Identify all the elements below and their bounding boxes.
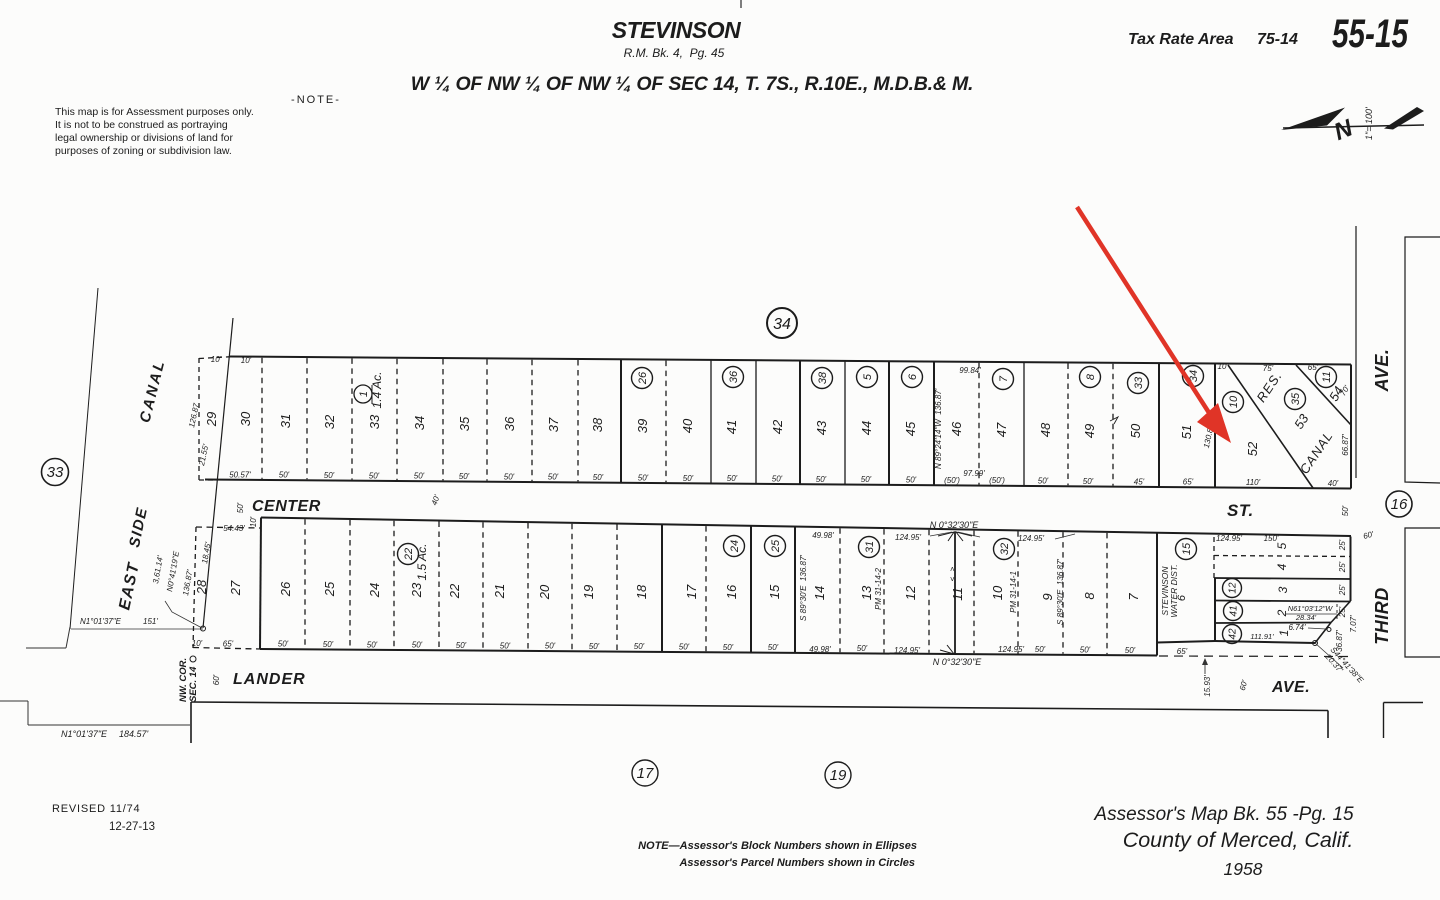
svg-text:25: 25	[770, 539, 782, 553]
svg-text:36.87': 36.87'	[1335, 630, 1344, 652]
svg-text:32: 32	[999, 543, 1011, 555]
svg-text:43: 43	[814, 420, 829, 435]
svg-text:42: 42	[770, 419, 785, 434]
svg-text:50': 50'	[323, 640, 334, 649]
svg-text:110': 110'	[1246, 478, 1261, 487]
svg-text:purposes of zoning or subdivis: purposes of zoning or subdivision law.	[55, 145, 232, 157]
svg-text:124.95': 124.95'	[998, 645, 1024, 654]
svg-text:It is not to be construed as p: It is not to be construed as portraying	[55, 119, 228, 131]
svg-text:4: 4	[1275, 563, 1289, 570]
svg-text:1.5 Ac.: 1.5 Ac.	[415, 544, 429, 581]
svg-text:N 89°24'14"W 136.87': N 89°24'14"W 136.87'	[934, 388, 943, 469]
svg-text:6.74': 6.74'	[1288, 623, 1306, 632]
svg-text:25: 25	[322, 581, 337, 597]
svg-text:35: 35	[457, 416, 472, 431]
svg-text:24: 24	[367, 583, 382, 598]
svg-text:Assessor's Map Bk. 55 -Pg. 15: Assessor's Map Bk. 55 -Pg. 15	[1093, 804, 1354, 825]
svg-text:W ¼ OF NW ¼ OF NW ¼ OF SEC 14,: W ¼ OF NW ¼ OF NW ¼ OF SEC 14, T. 7S., R…	[411, 73, 973, 95]
svg-text:33: 33	[1133, 376, 1145, 389]
svg-text:65': 65'	[1308, 363, 1319, 372]
svg-text:10': 10'	[249, 516, 258, 527]
svg-text:50': 50'	[504, 472, 515, 481]
svg-text:19: 19	[830, 767, 847, 784]
svg-text:County of Merced, Calif.: County of Merced, Calif.	[1123, 828, 1354, 852]
svg-text:N1°01'37"E: N1°01'37"E	[61, 729, 108, 739]
svg-text:50': 50'	[369, 471, 380, 480]
svg-text:27: 27	[228, 580, 243, 596]
svg-text:WATER DIST.: WATER DIST.	[1169, 564, 1179, 617]
svg-text:10': 10'	[211, 355, 222, 364]
svg-text:3: 3	[1276, 586, 1290, 593]
svg-text:50': 50'	[683, 474, 694, 483]
svg-text:22: 22	[403, 548, 415, 561]
svg-text:10': 10'	[241, 356, 252, 365]
svg-text:PM 31-14-1: PM 31-14-1	[1009, 571, 1018, 613]
svg-text:25': 25'	[1338, 606, 1347, 618]
svg-text:1: 1	[358, 391, 370, 397]
svg-text:13: 13	[859, 585, 874, 600]
svg-text:19: 19	[581, 585, 596, 599]
svg-text:16: 16	[724, 584, 739, 599]
svg-text:150': 150'	[1264, 534, 1279, 543]
svg-text:11: 11	[950, 587, 965, 601]
svg-text:7: 7	[1126, 593, 1141, 601]
svg-text:50': 50'	[412, 641, 423, 650]
svg-text:42: 42	[1228, 628, 1239, 640]
svg-text:˄: ˄	[950, 565, 955, 574]
svg-text:50': 50'	[1083, 477, 1094, 486]
svg-text:25': 25'	[1338, 561, 1347, 573]
svg-text:50': 50'	[236, 502, 245, 513]
svg-text:50': 50'	[1125, 646, 1136, 655]
svg-text:12: 12	[1228, 582, 1239, 594]
svg-text:˅: ˅	[950, 575, 955, 584]
svg-text:50': 50'	[414, 472, 425, 481]
svg-text:25': 25'	[1338, 539, 1347, 551]
svg-text:8: 8	[1082, 592, 1097, 600]
svg-text:34: 34	[412, 416, 427, 430]
svg-text:50': 50'	[861, 475, 872, 484]
svg-text:124.95': 124.95'	[894, 646, 920, 655]
svg-text:30: 30	[238, 411, 253, 426]
svg-text:47: 47	[994, 422, 1009, 437]
svg-text:7: 7	[998, 375, 1010, 382]
svg-text:21: 21	[492, 584, 507, 599]
svg-text:33: 33	[47, 464, 64, 481]
svg-text:11: 11	[1321, 371, 1333, 382]
svg-text:50': 50'	[727, 474, 738, 483]
svg-text:23: 23	[409, 582, 424, 598]
svg-text:N 0°32'30"E: N 0°32'30"E	[930, 520, 980, 530]
svg-text:55-15: 55-15	[1332, 12, 1409, 56]
svg-text:24: 24	[729, 540, 741, 553]
svg-text:10: 10	[1228, 395, 1240, 408]
svg-text:25': 25'	[1338, 584, 1347, 596]
svg-text:65': 65'	[223, 639, 234, 648]
svg-text:36: 36	[502, 416, 517, 431]
svg-text:1.4 Ac.: 1.4 Ac.	[370, 372, 384, 409]
svg-text:(50'): (50')	[989, 476, 1005, 485]
svg-text:50': 50'	[634, 642, 645, 651]
svg-text:legal ownership or divisions o: legal ownership or divisions of land for	[55, 132, 234, 144]
svg-text:31: 31	[864, 541, 876, 553]
svg-text:5: 5	[862, 373, 874, 380]
svg-text:75-14: 75-14	[1257, 31, 1298, 48]
svg-text:SEC. 14: SEC. 14	[188, 666, 199, 702]
svg-text:15: 15	[767, 584, 782, 599]
svg-text:65': 65'	[1177, 647, 1188, 656]
svg-text:6: 6	[907, 373, 919, 380]
svg-text:15: 15	[1181, 542, 1193, 555]
svg-text:50': 50'	[638, 473, 649, 482]
svg-text:10': 10'	[192, 639, 203, 648]
svg-text:17: 17	[684, 584, 699, 599]
svg-text:R.M. Bk. 4, Pg. 45: R.M. Bk. 4, Pg. 45	[624, 46, 725, 60]
svg-text:28: 28	[194, 579, 209, 595]
svg-text:12-27-13: 12-27-13	[109, 821, 155, 833]
svg-text:124.95': 124.95'	[1216, 534, 1242, 543]
svg-text:50': 50'	[324, 471, 335, 480]
svg-text:50': 50'	[816, 475, 827, 484]
svg-text:66.87': 66.87'	[1341, 434, 1350, 456]
svg-text:41: 41	[724, 420, 739, 434]
svg-text:50': 50'	[1080, 646, 1091, 655]
svg-text:18: 18	[634, 584, 649, 599]
svg-text:50': 50'	[593, 473, 604, 482]
svg-text:50': 50'	[906, 476, 917, 485]
svg-text:16: 16	[1391, 496, 1408, 513]
svg-text:S 89°30'E 136.87': S 89°30'E 136.87'	[1056, 559, 1065, 625]
svg-text:1958: 1958	[1224, 859, 1263, 879]
svg-text:50': 50'	[768, 643, 779, 652]
svg-text:This map is for Assessment pur: This map is for Assessment purposes only…	[55, 106, 254, 118]
svg-text:36: 36	[728, 370, 740, 383]
svg-text:31: 31	[278, 414, 293, 428]
svg-text:26: 26	[278, 581, 293, 597]
svg-text:51: 51	[1179, 425, 1194, 439]
svg-text:1"= 100': 1"= 100'	[1364, 107, 1374, 140]
svg-text:124.95': 124.95'	[1018, 534, 1044, 543]
svg-text:50.57': 50.57'	[229, 470, 251, 479]
svg-text:5: 5	[1275, 542, 1289, 549]
svg-text:17: 17	[637, 765, 654, 782]
svg-text:S 89°30'E 136.87': S 89°30'E 136.87'	[799, 555, 808, 621]
svg-text:(50'): (50')	[944, 476, 960, 485]
svg-text:49.98': 49.98'	[809, 645, 831, 654]
svg-text:AVE.: AVE.	[1372, 349, 1392, 393]
svg-text:38: 38	[590, 417, 605, 432]
svg-text:N1°01'37"E: N1°01'37"E	[80, 617, 122, 626]
svg-text:34: 34	[773, 316, 791, 333]
svg-text:37: 37	[546, 417, 561, 432]
svg-text:99.84': 99.84'	[959, 366, 981, 375]
svg-text:44: 44	[859, 421, 874, 435]
svg-text:41: 41	[1229, 605, 1240, 616]
svg-text:48: 48	[1038, 422, 1053, 437]
svg-text:65': 65'	[1183, 478, 1194, 487]
svg-text:REVISED 11/74: REVISED 11/74	[52, 803, 140, 815]
svg-text:STEVINSON: STEVINSON	[612, 17, 741, 43]
svg-text:N 0°32'30"E: N 0°32'30"E	[933, 657, 983, 667]
svg-text:35: 35	[1290, 392, 1302, 405]
svg-text:50': 50'	[367, 640, 378, 649]
svg-text:20: 20	[537, 584, 552, 600]
svg-text:45: 45	[903, 421, 918, 436]
svg-text:33: 33	[367, 414, 382, 429]
svg-text:32: 32	[322, 414, 337, 429]
svg-text:49.98': 49.98'	[812, 531, 834, 540]
svg-text:50': 50'	[1035, 645, 1046, 654]
svg-text:50': 50'	[545, 642, 556, 651]
svg-text:10: 10	[990, 585, 1005, 600]
svg-text:50': 50'	[679, 643, 690, 652]
svg-text:50': 50'	[1038, 477, 1049, 486]
svg-text:-NOTE-: -NOTE-	[291, 94, 341, 106]
svg-text:50': 50'	[772, 475, 783, 484]
svg-text:124.95': 124.95'	[895, 533, 921, 542]
svg-text:AVE.: AVE.	[1271, 679, 1310, 696]
svg-text:184.57': 184.57'	[119, 729, 149, 739]
svg-text:7.07': 7.07'	[1349, 615, 1358, 633]
svg-text:151': 151'	[143, 617, 158, 626]
svg-text:39: 39	[635, 419, 650, 433]
svg-text:50': 50'	[279, 471, 290, 480]
svg-text:ST.: ST.	[1227, 501, 1254, 520]
svg-text:15.93': 15.93'	[1203, 675, 1212, 697]
svg-text:26: 26	[637, 371, 649, 385]
svg-text:97.99': 97.99'	[963, 469, 985, 478]
svg-text:50: 50	[1128, 423, 1143, 438]
svg-text:PM 31-14-2: PM 31-14-2	[874, 568, 883, 610]
svg-text:9: 9	[1040, 593, 1055, 600]
svg-text:Tax Rate Area: Tax Rate Area	[1128, 31, 1234, 48]
svg-text:CENTER: CENTER	[252, 498, 321, 515]
svg-text:50': 50'	[548, 473, 559, 482]
svg-text:60': 60'	[212, 674, 221, 685]
svg-text:Assessor's Parcel Numbers show: Assessor's Parcel Numbers shown in Circl…	[678, 857, 915, 869]
svg-text:38: 38	[817, 371, 829, 384]
svg-text:22: 22	[447, 583, 462, 599]
svg-text:12: 12	[903, 585, 918, 600]
svg-text:10: 10	[1218, 362, 1227, 371]
svg-text:50': 50'	[857, 644, 868, 653]
svg-text:40: 40	[680, 418, 695, 433]
svg-text:LANDER: LANDER	[233, 671, 306, 688]
svg-text:52: 52	[1245, 441, 1260, 456]
svg-text:54.43': 54.43'	[223, 524, 245, 533]
svg-text:50': 50'	[1341, 505, 1350, 516]
svg-text:N61°03'12"W: N61°03'12"W	[1288, 604, 1334, 613]
svg-text:46: 46	[949, 421, 964, 436]
svg-text:NOTE—Assessor's Block Numbers: NOTE—Assessor's Block Numbers shown in E…	[638, 840, 917, 852]
svg-text:14: 14	[812, 586, 827, 600]
svg-text:50': 50'	[589, 642, 600, 651]
svg-text:29: 29	[204, 412, 219, 427]
svg-text:40': 40'	[1328, 479, 1339, 488]
svg-text:49: 49	[1082, 424, 1097, 438]
svg-text:111.91': 111.91'	[1250, 632, 1274, 641]
svg-text:50': 50'	[723, 643, 734, 652]
svg-text:50': 50'	[278, 640, 289, 649]
svg-text:50': 50'	[500, 641, 511, 650]
svg-text:THIRD: THIRD	[1372, 587, 1392, 645]
svg-text:50': 50'	[459, 472, 470, 481]
svg-text:50': 50'	[456, 641, 467, 650]
svg-text:45': 45'	[1134, 477, 1145, 486]
svg-text:8: 8	[1085, 373, 1097, 380]
